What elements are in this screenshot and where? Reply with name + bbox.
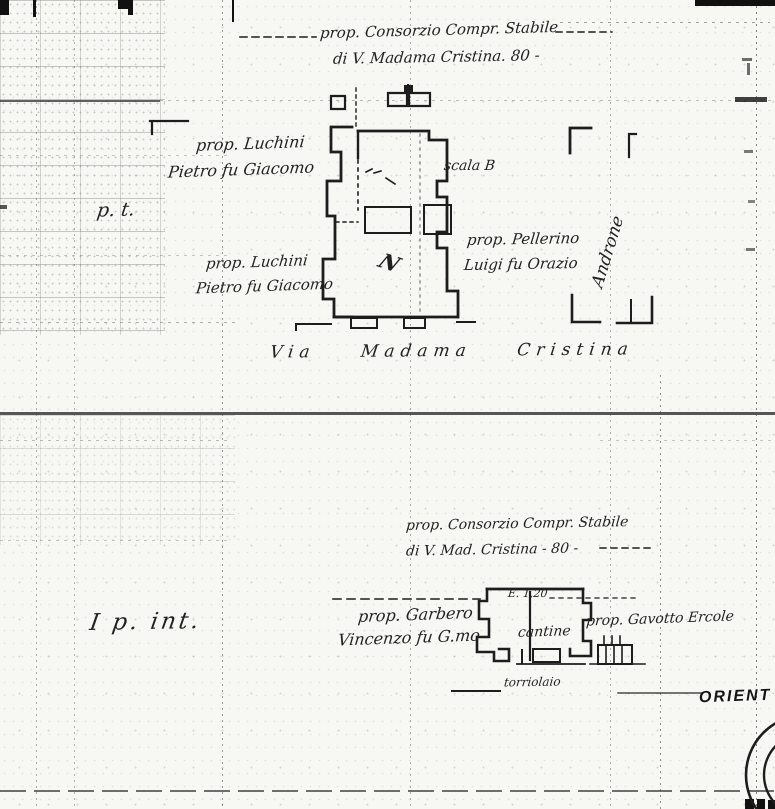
label-pellerino-line1: prop. Pellerino <box>466 229 580 249</box>
upper-building-main-hall <box>358 131 458 317</box>
label-orient: ORIENT <box>699 687 772 708</box>
label-piano-interrato: I p. int. <box>88 608 204 636</box>
label-luchini-upper-line1: prop. Luchini <box>195 132 306 155</box>
upper-building-tab <box>404 318 425 328</box>
label-piano-terra: p. t. <box>95 198 136 221</box>
label-via-madama-cristina: Via Madama Cristina <box>269 339 635 362</box>
androne-bracket-top-left <box>570 128 591 153</box>
label-quota: E. 1,20 <box>507 587 548 600</box>
label-cantine: cantine <box>517 623 571 641</box>
upper-building-tab <box>351 318 377 328</box>
plan-linework <box>0 0 775 809</box>
upper-building-inner-room <box>365 207 411 233</box>
gate-flag <box>404 85 413 92</box>
label-scala-b: scala B <box>443 158 496 174</box>
androne-bracket-top-right <box>629 134 636 157</box>
annex-hatch <box>604 636 622 664</box>
compass-outer-circle <box>746 715 775 809</box>
compass-inner-circle <box>764 733 775 809</box>
label-bottom-property-line2: di V. Mad. Cristina - 80 - <box>405 540 579 559</box>
label-top-property-line2: di V. Madama Cristina. 80 - <box>332 46 540 68</box>
androne-bracket-bottom-right <box>617 297 652 323</box>
androne-bracket-bottom-left <box>572 295 600 322</box>
label-luchini-lower-line1: prop. Luchini <box>205 251 309 273</box>
lower-building-tab <box>533 649 560 662</box>
label-torriolaio: torriolaio <box>503 674 561 689</box>
small-outbuilding <box>331 96 345 109</box>
scanned-plan-page: prop. Consorzio Compr. Stabile di V. Mad… <box>0 0 775 809</box>
wall-fragment <box>150 121 188 134</box>
lower-building-left-steps <box>477 589 509 661</box>
hall-mark <box>366 169 395 184</box>
label-pellerino-line2: Luigi fu Orazio <box>463 254 579 274</box>
upper-building-ext <box>296 324 331 330</box>
annex-outline <box>598 645 632 664</box>
